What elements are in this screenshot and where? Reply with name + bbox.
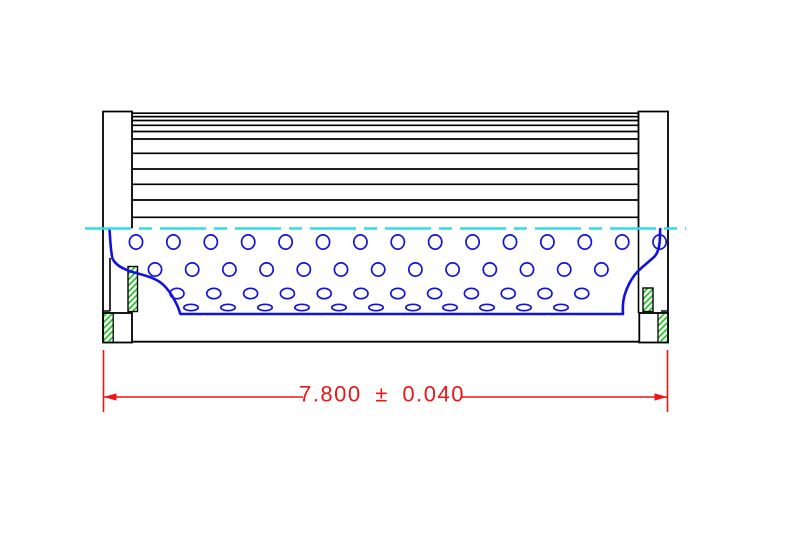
core-hole	[372, 263, 385, 276]
left-end-cap	[103, 112, 138, 343]
core-hole	[428, 288, 442, 298]
core-hole	[575, 288, 589, 298]
core-hole	[554, 304, 568, 310]
core-hole	[354, 235, 367, 249]
core-hole	[558, 263, 571, 276]
core-hole	[280, 288, 294, 298]
core-hole	[464, 288, 478, 298]
core-hole	[295, 304, 309, 310]
core-hole	[242, 235, 255, 249]
core-hole	[167, 235, 180, 249]
pleat-lines	[132, 113, 639, 217]
left-cap-skirt	[103, 258, 110, 311]
core-hole	[207, 288, 221, 298]
left-flange-hatch	[103, 313, 113, 343]
arrowhead-right	[655, 393, 668, 400]
technical-drawing: 7.800 ± 0.040	[0, 0, 789, 546]
core-hole	[148, 263, 161, 276]
core-hole	[616, 235, 629, 249]
core-hole	[429, 235, 442, 249]
core-hole	[334, 263, 347, 276]
core-hole	[501, 288, 515, 298]
core-hole	[520, 263, 533, 276]
arrowhead-left	[104, 393, 117, 400]
core-hole	[446, 263, 459, 276]
core-hole	[297, 263, 310, 276]
drawing-canvas: 7.800 ± 0.040	[0, 0, 789, 546]
core-hole	[595, 263, 608, 276]
core-hole	[129, 235, 142, 249]
dimension-text: 7.800 ± 0.040	[299, 382, 465, 407]
core-hole	[409, 263, 422, 276]
core-hole	[316, 235, 329, 249]
core-hole	[204, 235, 217, 249]
right-flange-hatch	[658, 313, 668, 343]
core-hole	[317, 288, 331, 298]
core-hole	[279, 235, 292, 249]
core-hole	[369, 304, 383, 310]
core-hole	[332, 304, 346, 310]
core-hole	[578, 235, 591, 249]
core-hole	[466, 235, 479, 249]
core-hole	[186, 263, 199, 276]
perforated-core	[110, 229, 667, 314]
core-hole	[260, 263, 273, 276]
core-hole	[443, 304, 457, 310]
core-hole	[503, 235, 516, 249]
core-hole	[517, 304, 531, 310]
core-hole	[223, 263, 236, 276]
right-end-cap	[639, 112, 669, 343]
core-hole	[221, 304, 235, 310]
dimension: 7.800 ± 0.040	[104, 350, 668, 412]
core-hole	[480, 304, 494, 310]
core-hole	[258, 304, 272, 310]
core-hole	[541, 235, 554, 249]
core-hole	[483, 263, 496, 276]
core-hole	[184, 304, 198, 310]
core-hole	[244, 288, 258, 298]
core-hole	[538, 288, 552, 298]
core-hole	[406, 304, 420, 310]
core-left-curve	[110, 229, 181, 314]
right-seal-strip	[643, 288, 653, 312]
core-hole	[354, 288, 368, 298]
core-hole	[391, 235, 404, 249]
core-hole	[391, 288, 405, 298]
